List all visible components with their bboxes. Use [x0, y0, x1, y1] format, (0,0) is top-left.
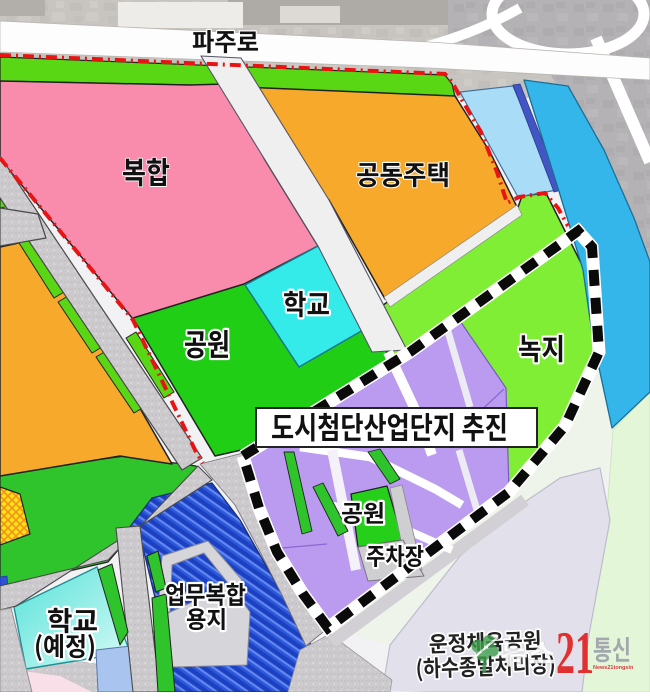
svg-text:News21tongsin: News21tongsin — [593, 665, 634, 671]
